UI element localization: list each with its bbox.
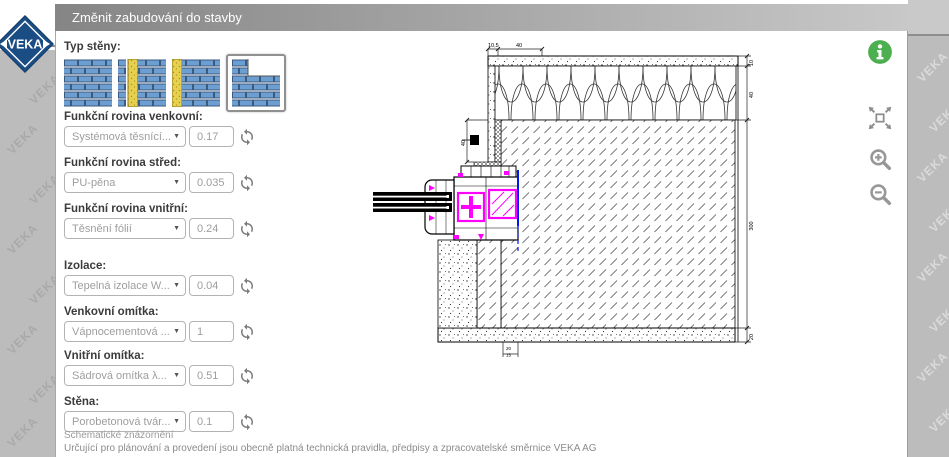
dialog-titlebar: Změnit zabudování do stavby <box>55 4 908 31</box>
dropdown-arrow-icon: ▼ <box>171 328 185 335</box>
dropdown-arrow-icon: ▼ <box>171 133 185 140</box>
dropdown-arrow-icon: ▼ <box>171 372 185 379</box>
veka-watermark: VEKA <box>5 321 41 357</box>
background-right-strip: VEKA VEKA VEKA VEKA VEKA VEKA VEKA VEKA <box>908 0 949 457</box>
wall-type-solid-button[interactable] <box>64 59 112 107</box>
field-label: Funkční rovina venkovní: <box>64 111 324 124</box>
wall-refresh-button[interactable] <box>238 412 257 431</box>
veka-watermark: VEKA <box>5 414 41 450</box>
field-label: Stěna: <box>64 396 324 409</box>
dropdown-arrow-icon: ▼ <box>171 179 185 186</box>
joint-seal-vertical <box>495 120 501 162</box>
middle-plane-refresh-button[interactable] <box>238 173 257 192</box>
main-panel: Typ stěny: <box>55 31 908 457</box>
installation-section-drawing: 10,5 40 10 40 300 20 40 20 15 <box>366 36 766 366</box>
dropdown-arrow-icon: ▼ <box>171 225 185 232</box>
info-icon <box>867 39 893 65</box>
wall-type-label: Typ stěny: <box>64 41 121 53</box>
wall-core-insulation-icon <box>118 59 166 107</box>
field-label: Izolace: <box>64 260 324 273</box>
disclaimer-note: Určující pro plánování a provedení jsou … <box>64 443 904 454</box>
field-label: Funkční rovina střed: <box>64 157 324 170</box>
veka-watermark: VEKA <box>5 221 41 257</box>
interior-plaster-select[interactable]: Sádrová omítka λ... ▼ <box>64 365 186 386</box>
exterior-reveal-plaster <box>488 66 495 162</box>
fixing-anchor <box>470 135 479 145</box>
selected-option: Těsnění fólií <box>65 223 171 235</box>
field-group-insulation: Izolace: Tepelná izolace W... ▼ <box>64 260 324 296</box>
field-group-interior-plaster: Vnitřní omítka: Sádrová omítka λ... ▼ <box>64 350 324 386</box>
wall-solid-icon <box>64 59 112 107</box>
dropdown-arrow-icon: ▼ <box>171 418 185 425</box>
field-label: Funkční rovina vnitřní: <box>64 203 324 216</box>
veka-watermark: VEKA <box>927 199 949 235</box>
middle-plane-value-input[interactable] <box>189 172 234 193</box>
svg-text:40: 40 <box>461 140 467 146</box>
interior-reveal-plaster <box>438 240 477 328</box>
field-label: Venkovní omítka: <box>64 306 324 319</box>
wall-select[interactable]: Porobetonová tvár... ▼ <box>64 411 186 432</box>
selected-option: Tepelná izolace W... <box>65 280 171 292</box>
wall-corner-detail-icon <box>231 59 281 107</box>
svg-text:20: 20 <box>506 346 512 351</box>
svg-text:40: 40 <box>516 43 522 49</box>
interior-plaster-refresh-button[interactable] <box>238 366 257 385</box>
insulation-refresh-button[interactable] <box>238 276 257 295</box>
interior-plaster-layer <box>438 328 735 342</box>
interior-plane-value-input[interactable] <box>189 218 234 239</box>
zoom-in-icon <box>867 146 893 172</box>
dropdown-arrow-icon: ▼ <box>171 282 185 289</box>
schematic-note: Schematické znázornění <box>64 430 174 441</box>
field-group-exterior-plaster: Venkovní omítka: Vápnocementová ... ▼ <box>64 306 324 342</box>
selected-option: Systémová těsnící... <box>65 131 171 143</box>
svg-text:20: 20 <box>749 334 755 340</box>
svg-text:10,5: 10,5 <box>488 43 499 49</box>
veka-logo: VEKA <box>0 13 58 79</box>
wall-value-input[interactable] <box>189 411 234 432</box>
svg-text:15: 15 <box>506 353 512 358</box>
wall-core-jamb <box>477 240 501 328</box>
exterior-plaster-refresh-button[interactable] <box>238 322 257 341</box>
refresh-icon <box>238 413 256 431</box>
insulation-value-input[interactable] <box>189 275 234 296</box>
svg-text:300: 300 <box>749 221 755 230</box>
veka-watermark: VEKA <box>915 149 949 185</box>
refresh-icon <box>238 220 256 238</box>
svg-text:10: 10 <box>749 60 755 66</box>
veka-watermark: VEKA <box>915 249 949 285</box>
field-group-exterior-plane: Funkční rovina venkovní: Systémová těsní… <box>64 111 324 147</box>
exterior-plane-value-input[interactable] <box>189 126 234 147</box>
wall-type-selector <box>64 54 286 112</box>
fit-to-screen-button[interactable] <box>867 105 893 131</box>
middle-plane-select[interactable]: PU-pěna ▼ <box>64 172 186 193</box>
interior-plane-refresh-button[interactable] <box>238 219 257 238</box>
svg-text:40: 40 <box>749 92 755 98</box>
refresh-icon <box>238 323 256 341</box>
insulation-layer <box>490 66 736 120</box>
exterior-plaster-layer <box>488 56 738 66</box>
wall-type-core-insulation-button[interactable] <box>118 59 166 107</box>
wall-type-exterior-insulation-button[interactable] <box>172 59 220 107</box>
field-group-wall: Stěna: Porobetonová tvár... ▼ <box>64 396 324 432</box>
refresh-icon <box>238 174 256 192</box>
exterior-plane-refresh-button[interactable] <box>238 127 257 146</box>
refresh-icon <box>238 128 256 146</box>
veka-watermark: VEKA <box>5 121 41 157</box>
selected-option: Porobetonová tvár... <box>65 416 171 428</box>
selected-option: Vápnocementová ... <box>65 326 171 338</box>
wall-type-corner-detail-button[interactable] <box>226 54 286 112</box>
background-right-top-block <box>908 0 949 36</box>
veka-watermark: VEKA <box>927 299 949 335</box>
logo-text: VEKA <box>8 38 43 52</box>
field-label: Vnitřní omítka: <box>64 350 324 363</box>
zoom-out-icon <box>867 181 893 207</box>
veka-watermark: VEKA <box>927 399 949 435</box>
zoom-in-button[interactable] <box>867 146 893 172</box>
exterior-plaster-value-input[interactable] <box>189 321 234 342</box>
interior-plaster-value-input[interactable] <box>189 365 234 386</box>
insulation-select[interactable]: Tepelná izolace W... ▼ <box>64 275 186 296</box>
zoom-out-button[interactable] <box>867 181 893 207</box>
exterior-plane-select[interactable]: Systémová těsnící... ▼ <box>64 126 186 147</box>
dialog-title: Změnit zabudování do stavby <box>72 10 242 25</box>
veka-watermark: VEKA <box>915 49 949 85</box>
field-group-middle-plane: Funkční rovina střed: PU-pěna ▼ <box>64 157 324 193</box>
exterior-plaster-select[interactable]: Vápnocementová ... ▼ <box>64 321 186 342</box>
selected-option: Sádrová omítka λ... <box>65 370 171 382</box>
refresh-icon <box>238 277 256 295</box>
app-window: VEKA VEKA VEKA VEKA VEKA VEKA VEKA VEKA … <box>0 0 949 457</box>
interior-plane-select[interactable]: Těsnění fólií ▼ <box>64 218 186 239</box>
veka-watermark: VEKA <box>927 99 949 135</box>
info-button[interactable] <box>867 39 893 65</box>
selected-option: PU-pěna <box>65 177 171 189</box>
fit-to-screen-icon <box>867 105 893 131</box>
refresh-icon <box>238 367 256 385</box>
wall-exterior-insulation-icon <box>172 59 220 107</box>
wall-core <box>501 120 735 328</box>
veka-watermark: VEKA <box>915 349 949 385</box>
field-group-interior-plane: Funkční rovina vnitřní: Těsnění fólií ▼ <box>64 203 324 239</box>
